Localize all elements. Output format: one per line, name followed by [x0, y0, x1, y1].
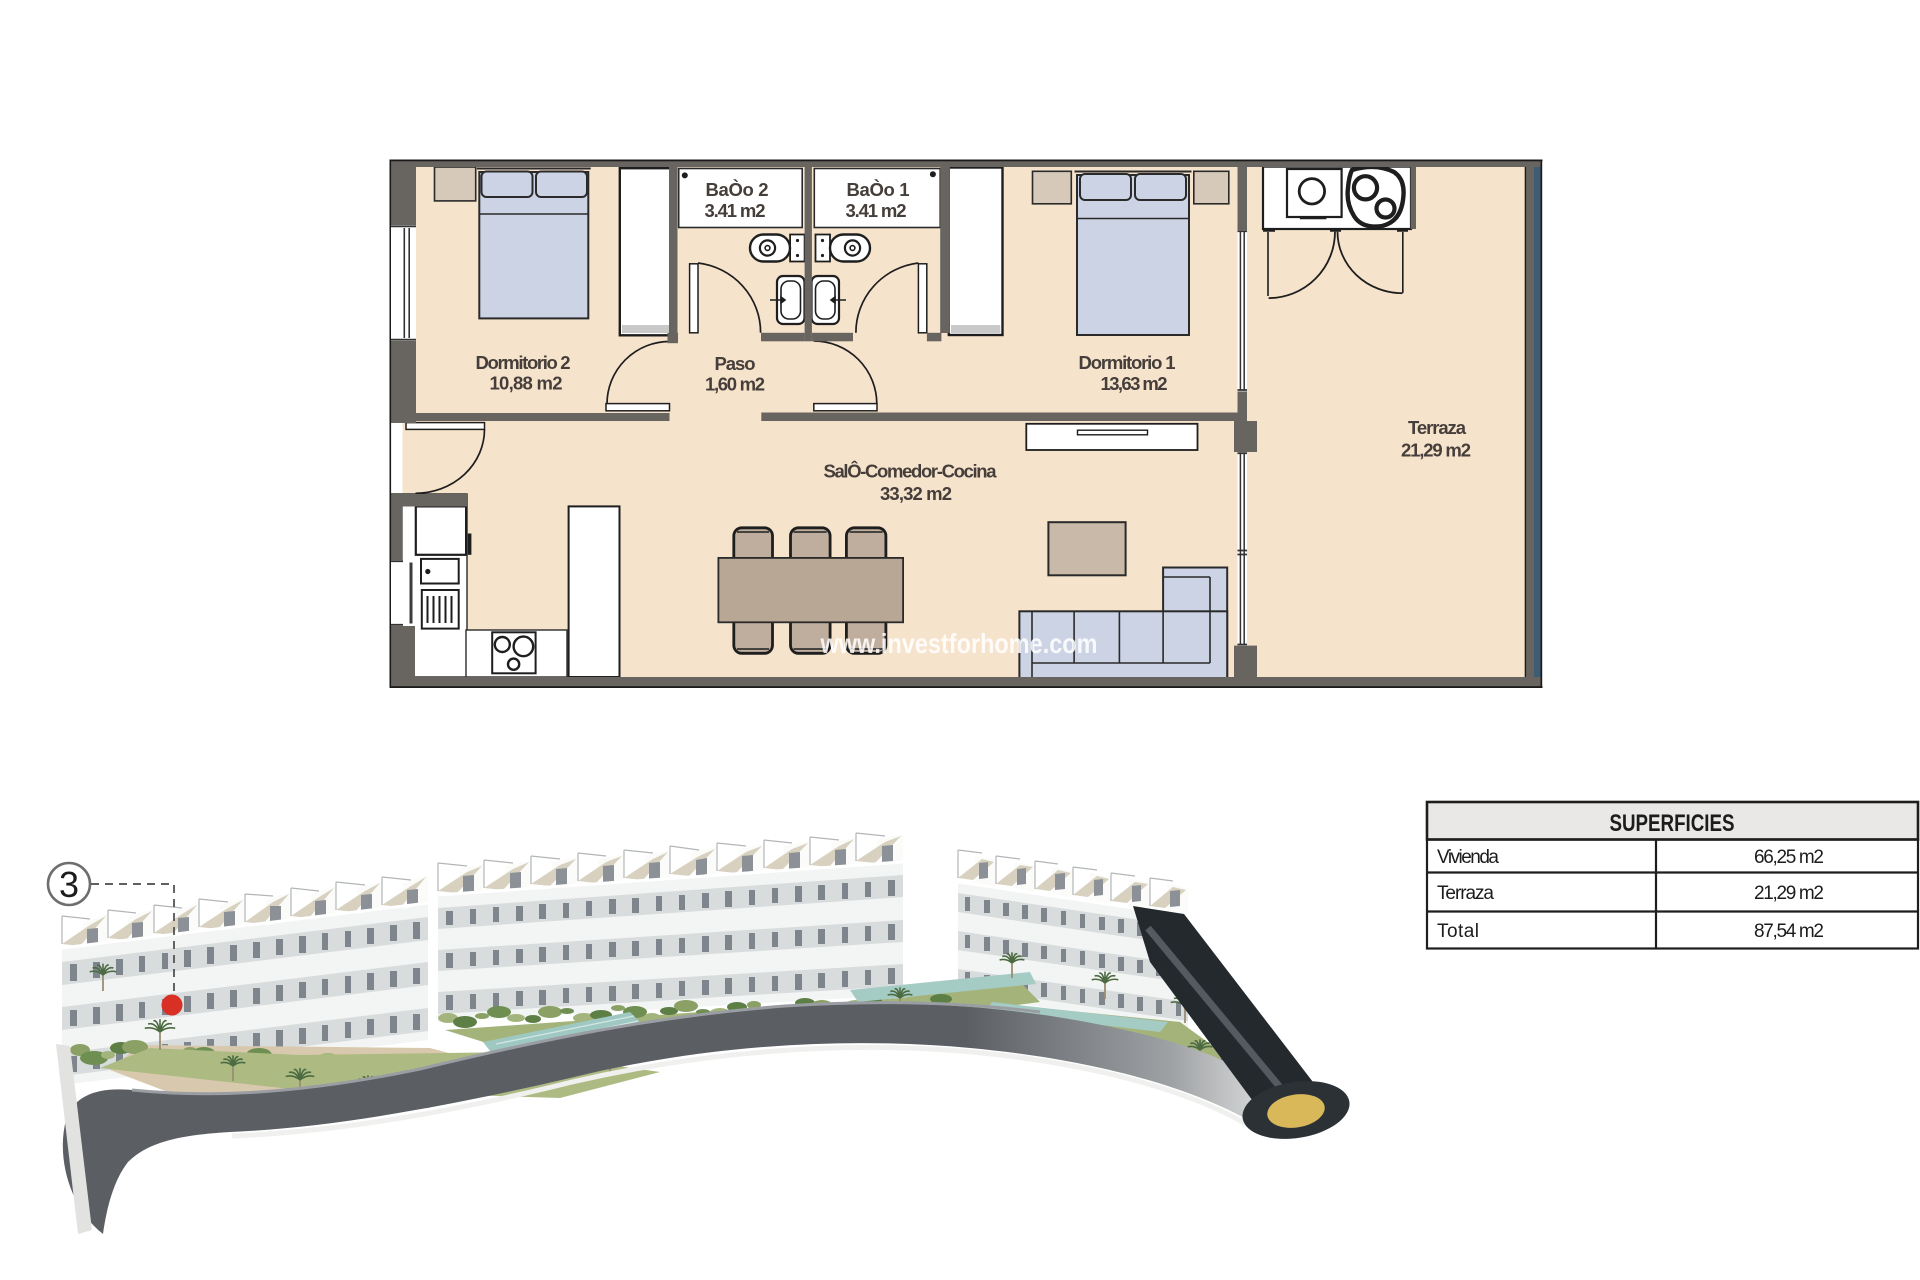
svg-text:Dormitorio 1: Dormitorio 1 — [1079, 352, 1176, 373]
svg-text:3.41 m2: 3.41 m2 — [846, 200, 907, 221]
svg-text:3.41 m2: 3.41 m2 — [705, 200, 766, 221]
svg-text:21,29 m2: 21,29 m2 — [1401, 440, 1471, 461]
svg-text:SalÔ-Comedor-Cocina: SalÔ-Comedor-Cocina — [824, 461, 998, 482]
svg-text:BaÒo 1: BaÒo 1 — [847, 179, 910, 200]
svg-text:13,63 m2: 13,63 m2 — [1101, 373, 1168, 394]
svg-text:1,60 m2: 1,60 m2 — [705, 374, 765, 395]
svg-text:Paso: Paso — [715, 353, 756, 374]
svg-text:10,88 m2: 10,88 m2 — [490, 373, 563, 394]
svg-text:66,25 m2: 66,25 m2 — [1754, 847, 1824, 868]
svg-text:21,29 m2: 21,29 m2 — [1754, 883, 1824, 904]
svg-text:SUPERFICIES: SUPERFICIES — [1610, 810, 1735, 837]
svg-text:Total: Total — [1437, 921, 1479, 942]
svg-text:Dormitorio 2: Dormitorio 2 — [476, 352, 571, 373]
svg-text:Vivienda: Vivienda — [1437, 847, 1499, 868]
svg-text:3: 3 — [59, 864, 79, 905]
svg-text:Terraza: Terraza — [1437, 883, 1494, 904]
svg-text:33,32 m2: 33,32 m2 — [880, 483, 952, 504]
svg-text:www.investforhome.com: www.investforhome.com — [820, 628, 1098, 659]
svg-text:BaÒo 2: BaÒo 2 — [706, 179, 769, 200]
svg-text:Terraza: Terraza — [1408, 417, 1467, 438]
svg-text:87,54 m2: 87,54 m2 — [1754, 921, 1824, 942]
